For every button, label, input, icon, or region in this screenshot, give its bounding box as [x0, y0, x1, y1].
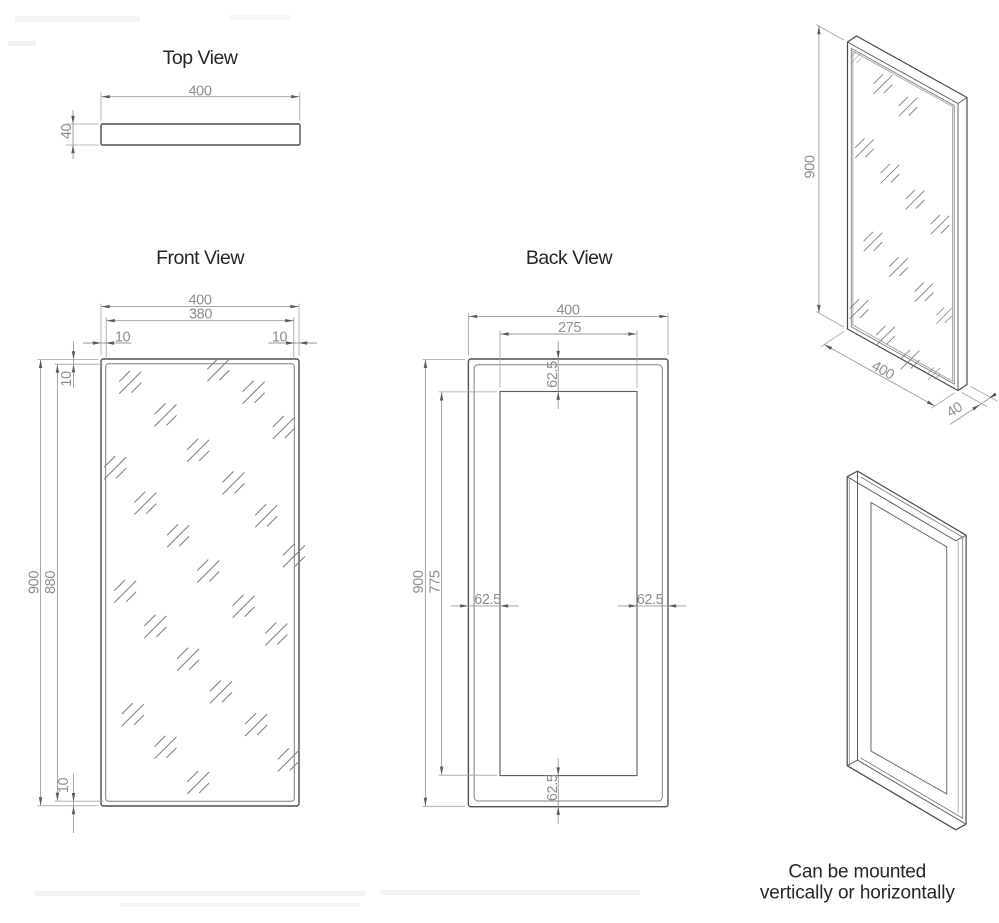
svg-text:380: 380 [189, 307, 212, 323]
svg-text:275: 275 [558, 320, 581, 336]
svg-text:Top View: Top View [163, 47, 239, 69]
svg-text:10: 10 [56, 778, 72, 794]
svg-text:Can be mounted: Can be mounted [788, 862, 926, 883]
svg-text:vertically or horizontally: vertically or horizontally [760, 883, 955, 904]
svg-text:400: 400 [869, 358, 897, 383]
svg-text:40: 40 [944, 399, 966, 421]
svg-text:880: 880 [43, 571, 59, 594]
svg-text:62.5: 62.5 [637, 592, 664, 608]
svg-text:Front View: Front View [156, 247, 245, 269]
svg-text:10: 10 [59, 371, 75, 387]
svg-text:10: 10 [272, 329, 288, 345]
svg-text:900: 900 [802, 155, 818, 178]
svg-text:62.5: 62.5 [545, 361, 561, 388]
svg-text:900: 900 [26, 571, 42, 594]
svg-text:900: 900 [411, 570, 427, 593]
svg-text:62.5: 62.5 [545, 774, 561, 801]
svg-text:62.5: 62.5 [474, 592, 501, 608]
svg-text:400: 400 [189, 83, 212, 99]
svg-text:775: 775 [427, 570, 443, 593]
svg-text:400: 400 [557, 302, 580, 318]
svg-text:Back View: Back View [526, 247, 614, 269]
svg-text:10: 10 [115, 329, 131, 345]
svg-text:40: 40 [59, 124, 75, 140]
